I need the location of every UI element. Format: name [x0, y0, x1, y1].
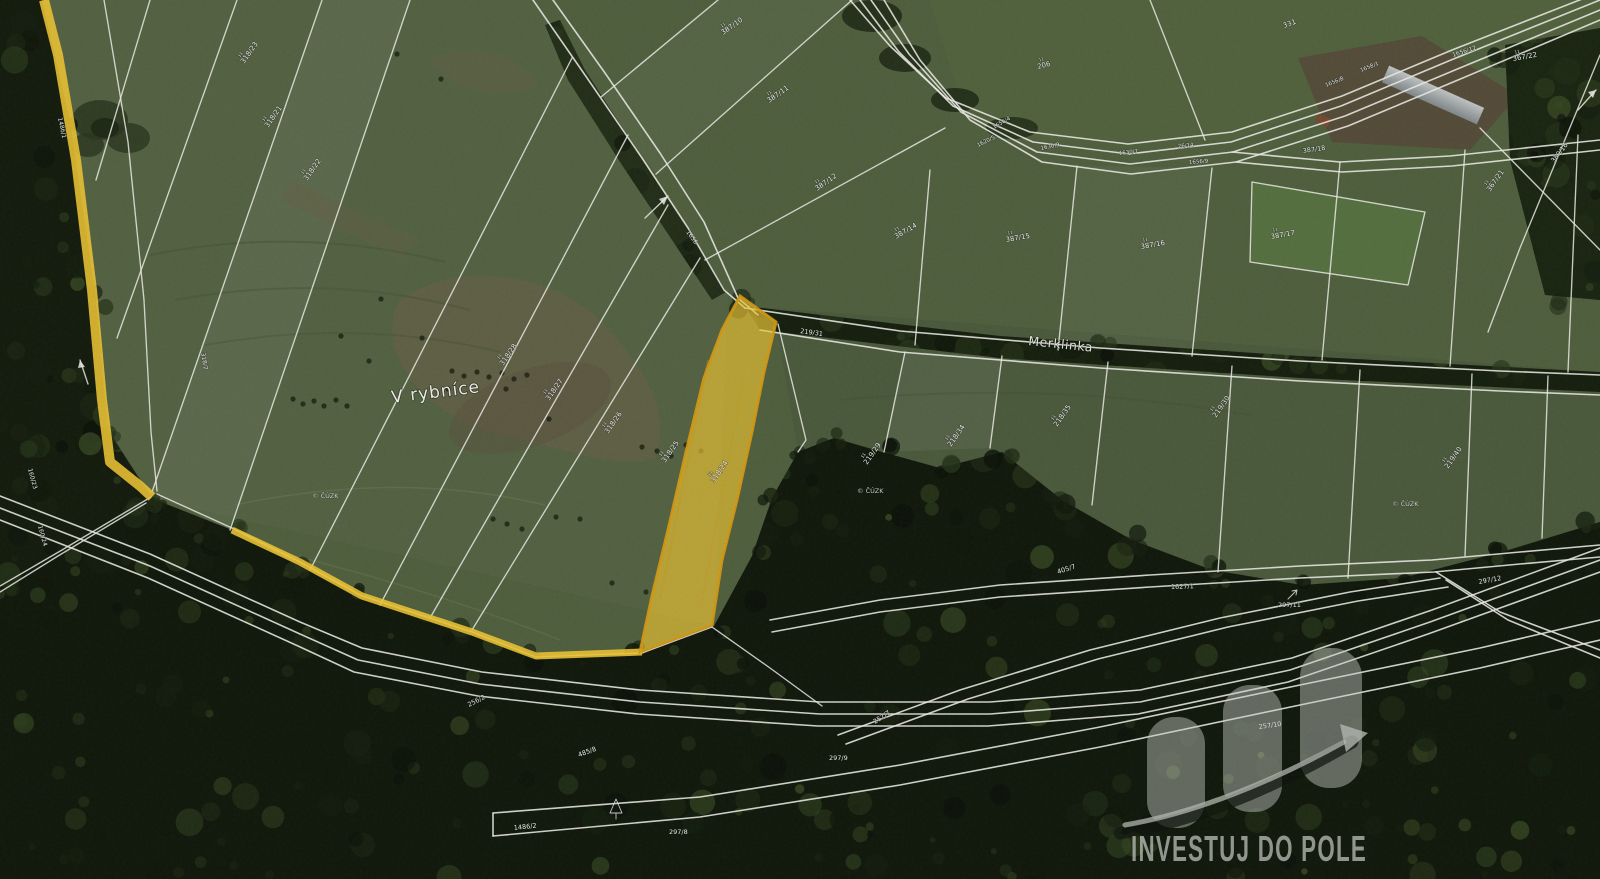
cadastral-satellite-map: V rybníceMerklinka318/2311318/2111318/22…	[0, 0, 1600, 879]
satellite-map-screenshot: V rybníceMerklinka318/2311318/2111318/22…	[0, 0, 1600, 879]
noise-overlay-light	[0, 0, 1600, 879]
